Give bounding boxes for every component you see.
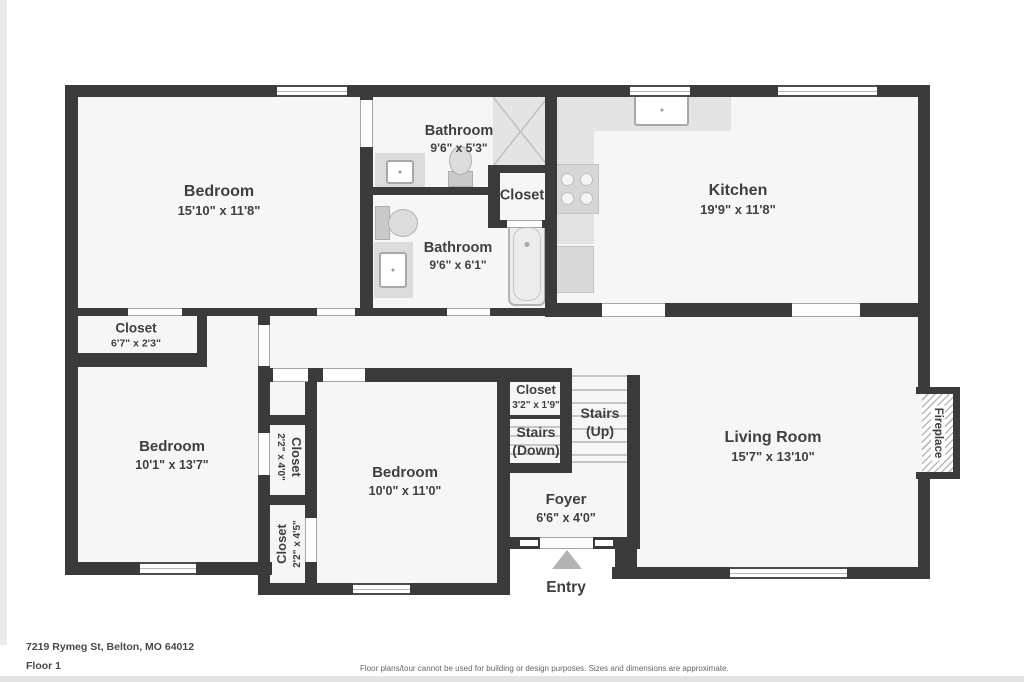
disclaimer-text: Floor plans/tour cannot be used for buil…	[360, 664, 729, 673]
wall	[497, 463, 572, 473]
window	[778, 85, 877, 97]
bathroom1-sink	[386, 160, 414, 184]
stove	[553, 164, 599, 214]
stair-tread	[572, 389, 627, 391]
room-label-closet-a: Closet2'2" x 4'0"	[274, 433, 304, 481]
wall	[918, 85, 930, 394]
room-label-kitchen: Kitchen19'9" x 11'8"	[700, 181, 776, 219]
door-opening	[317, 308, 355, 316]
room-label-closet-b: Closet2'2" x 4'5"	[274, 520, 304, 568]
wall	[65, 353, 207, 367]
door-opening	[128, 308, 182, 316]
shower-stall	[493, 97, 548, 166]
wall	[505, 415, 570, 419]
wall	[197, 308, 207, 367]
room-label-bedroom-3: Bedroom10'0" x 11'0"	[369, 463, 442, 499]
fireplace-wall	[916, 472, 960, 479]
stair-tread	[572, 454, 627, 456]
fireplace-wall	[953, 387, 960, 479]
door-opening	[360, 100, 373, 147]
stair-tread	[572, 461, 627, 463]
room-label-bedroom-2: Bedroom10'1" x 13'7"	[135, 437, 208, 473]
room-label-fireplace: Fireplace	[931, 406, 945, 461]
label-entry: Entry	[546, 578, 586, 598]
wall	[497, 373, 510, 543]
door-opening	[273, 368, 308, 382]
stove-burner	[580, 173, 593, 186]
room-label-bathroom-1: Bathroom9'6" x 5'3"	[425, 122, 493, 156]
label-stairs-down: Stairs(Down)	[512, 423, 559, 459]
stove-burner	[561, 192, 574, 205]
door-opening	[305, 518, 317, 562]
room-label-bath-closet: Closet	[500, 187, 544, 206]
door-opening	[323, 368, 365, 382]
stove-burner	[561, 173, 574, 186]
floor-plan: Fireplace Bedroom15'10" x 11'8" Bathroom…	[0, 0, 1024, 682]
kitchen-sink	[634, 94, 689, 126]
entry-door-opening	[540, 537, 593, 549]
door-opening	[447, 308, 490, 316]
left-page-edge	[0, 0, 7, 645]
floor-label: Floor 1	[26, 660, 61, 672]
window	[140, 562, 196, 575]
wall	[488, 165, 500, 228]
bottom-page-edge	[0, 676, 1024, 682]
room-label-foyer: Foyer6'6" x 4'0"	[536, 490, 596, 526]
bathroom2-sink	[379, 252, 407, 288]
door-opening	[258, 325, 270, 366]
window	[630, 85, 690, 97]
door-opening	[792, 303, 860, 317]
stove-burner	[580, 192, 593, 205]
wall	[627, 375, 640, 543]
label-stairs-up: Stairs(Up)	[581, 404, 620, 440]
wall	[360, 187, 500, 195]
room-label-living-room: Living Room15'7" x 13'10"	[725, 428, 822, 466]
door-opening	[602, 303, 665, 317]
address-text: 7219 Rymeg St, Belton, MO 64012	[26, 641, 194, 653]
wall	[918, 472, 930, 579]
wall	[497, 543, 510, 595]
wall	[65, 85, 78, 575]
room-label-hall-closet: Closet6'7" x 2'3"	[111, 319, 161, 350]
entry-sidelight	[518, 538, 540, 548]
stair-tread	[572, 441, 627, 443]
room-label-stairs-closet: Closet 3'2" x 1'9"	[512, 382, 560, 412]
entry-sidelight	[593, 538, 615, 548]
window	[277, 85, 347, 97]
room-label-bathroom-2: Bathroom9'6" x 6'1"	[424, 239, 492, 273]
window	[353, 583, 410, 595]
door-opening	[258, 433, 270, 475]
bathroom2-toilet-bowl	[388, 209, 418, 237]
bathtub	[508, 222, 546, 306]
wall	[305, 375, 317, 595]
room-label-bedroom-1: Bedroom15'10" x 11'8"	[178, 182, 261, 220]
entry-arrow-icon	[552, 550, 582, 569]
door-opening	[507, 220, 542, 228]
refrigerator	[556, 246, 594, 293]
window	[730, 567, 847, 579]
wall	[545, 85, 557, 317]
stair-tread	[572, 375, 627, 377]
